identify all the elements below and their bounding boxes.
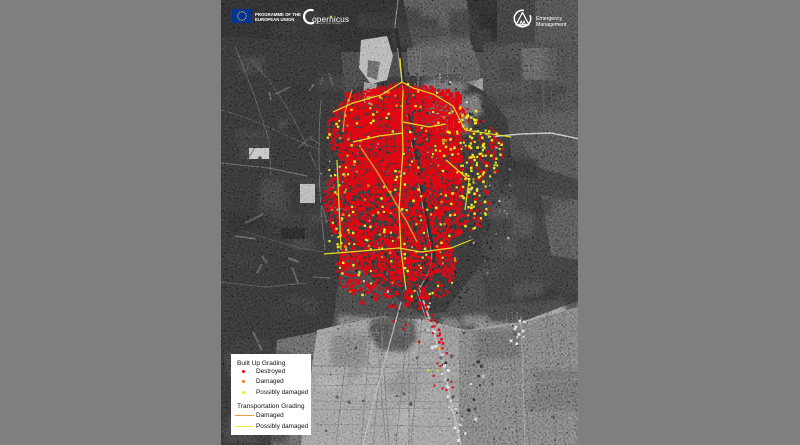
svg-text:Europe's eyes on Earth: Europe's eyes on Earth bbox=[316, 22, 343, 25]
svg-text:Management: Management bbox=[536, 22, 567, 28]
